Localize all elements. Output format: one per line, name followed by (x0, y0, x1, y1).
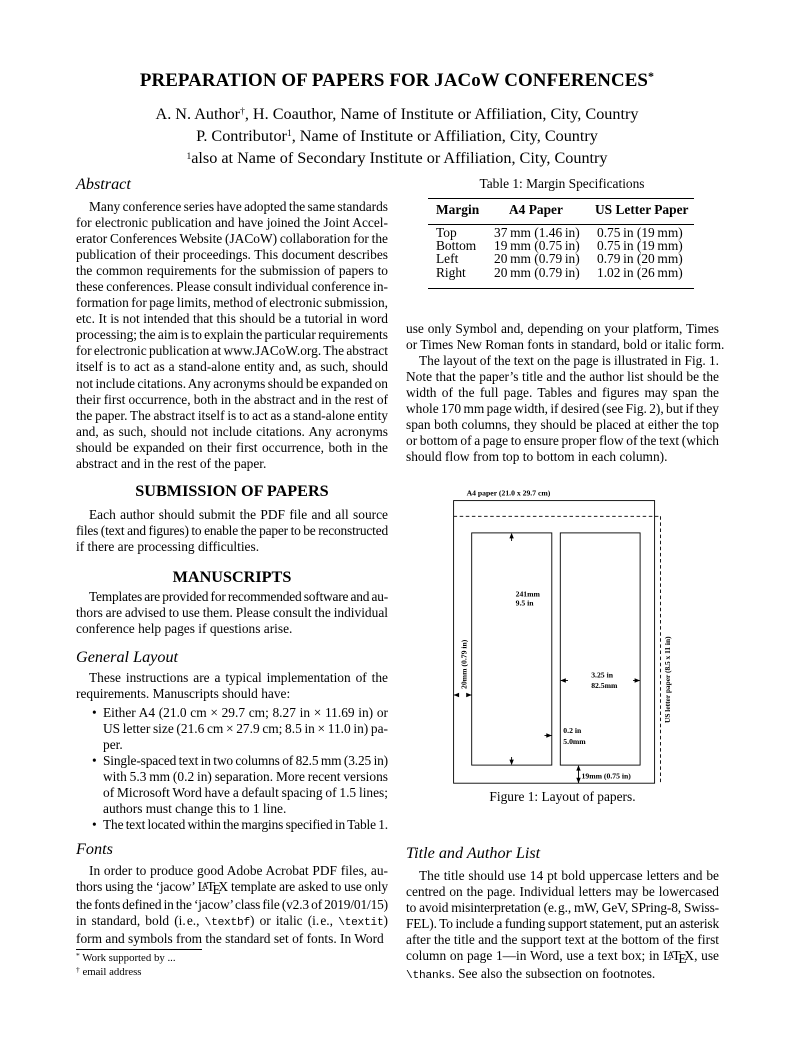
svg-text:US letter paper (8.5 x 11 in): US letter paper (8.5 x 11 in) (663, 636, 672, 723)
svg-text:0.2 in: 0.2 in (563, 726, 582, 735)
svg-text:241mm: 241mm (516, 590, 541, 599)
svg-text:20mm (0.79 in): 20mm (0.79 in) (460, 639, 469, 689)
svg-text:A4 paper (21.0 x 29.7 cm): A4 paper (21.0 x 29.7 cm) (467, 489, 551, 498)
svg-text:3.25 in: 3.25 in (591, 671, 614, 680)
svg-text:19mm (0.75 in): 19mm (0.75 in) (582, 772, 632, 781)
svg-text:5.0mm: 5.0mm (563, 737, 586, 746)
svg-text:9.5 in: 9.5 in (516, 599, 535, 608)
svg-text:82.5mm: 82.5mm (591, 681, 618, 690)
